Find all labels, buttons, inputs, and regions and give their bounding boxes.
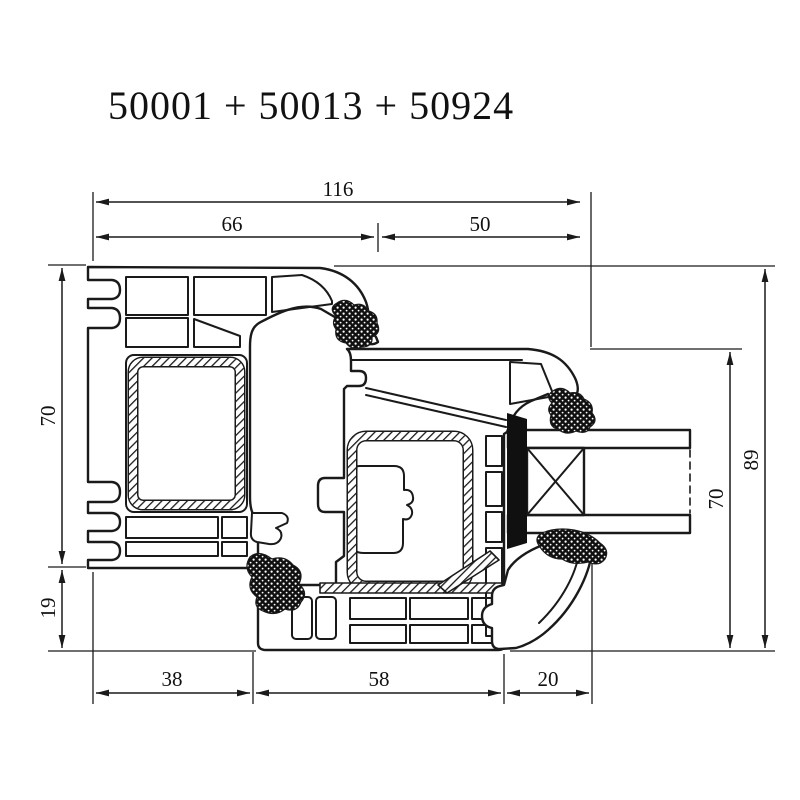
drawing-canvas: 50001 + 50013 + 50924 116 66 50 70 19	[0, 0, 800, 800]
glass-unit	[507, 413, 690, 549]
dim-label-top-left: 66	[222, 212, 243, 236]
profile-cross-section-drawing: 50001 + 50013 + 50924 116 66 50 70 19	[0, 0, 800, 800]
drawing-title: 50001 + 50013 + 50924	[108, 83, 514, 128]
gasket-sash-glazing	[549, 388, 595, 433]
profiles	[88, 267, 690, 650]
glass-pane-outer	[508, 430, 690, 448]
dim-label-bottom-middle: 58	[369, 667, 390, 691]
dim-label-left-lower: 19	[36, 598, 60, 619]
dim-label-right-outer: 89	[739, 450, 763, 471]
dim-label-top-right: 50	[470, 212, 491, 236]
dim-label-left-upper: 70	[36, 406, 60, 427]
dim-label-right-inner: 70	[704, 489, 728, 510]
gasket-frame-nose	[332, 300, 378, 348]
gasket-frame-sash-lower	[247, 553, 305, 613]
frame-rebate-hook	[251, 513, 288, 544]
glazing-block	[507, 413, 527, 549]
dim-label-bottom-right: 20	[538, 667, 559, 691]
glass-pane-inner	[508, 515, 690, 533]
steel-strip	[320, 583, 502, 593]
dim-label-bottom-left: 38	[162, 667, 183, 691]
dim-label-top-total: 116	[323, 177, 354, 201]
